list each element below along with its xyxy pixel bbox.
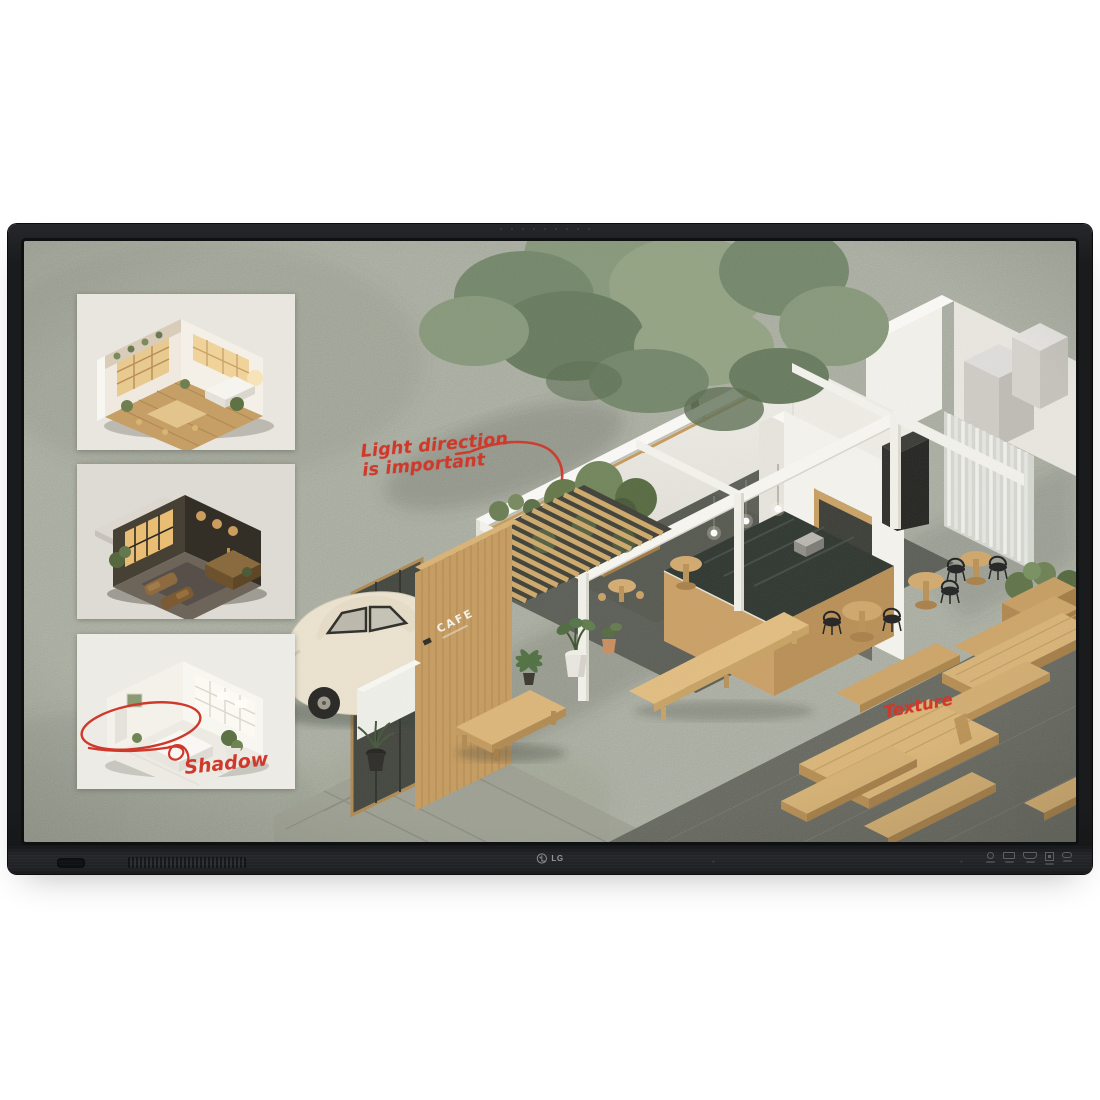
screw-dot	[960, 860, 963, 863]
product-photo: CAFE	[0, 0, 1100, 1100]
usb-port-icon	[1003, 852, 1015, 863]
screw-dot	[712, 860, 715, 863]
rear-port-icons	[986, 852, 1072, 865]
thumbnail-bright-studio-interior: Shadow	[77, 634, 295, 789]
monitor-frame: CAFE	[8, 224, 1092, 874]
bottom-bezel: LG	[8, 845, 1092, 874]
thumbnail-warm-cafe-interior	[77, 294, 295, 450]
ir-sensor-window	[57, 858, 85, 868]
display-screen: CAFE	[24, 241, 1076, 842]
touch-usb-port-icon	[1045, 852, 1054, 865]
thumbnail-dark-lounge-render	[77, 464, 295, 619]
lg-logo-icon	[536, 853, 547, 864]
av-port-icon	[1062, 852, 1072, 862]
power-indicator-icon	[986, 852, 995, 863]
speaker-grille	[128, 857, 246, 868]
thumbnail-warm-cafe-render	[77, 294, 295, 450]
sensor-dots	[500, 228, 590, 230]
lg-logo: LG	[536, 853, 563, 864]
hdmi-port-icon	[1023, 852, 1037, 863]
brand-label: LG	[551, 854, 563, 863]
thumbnail-dark-lounge-interior	[77, 464, 295, 619]
thumbnail-bright-studio-render: Shadow	[77, 634, 295, 789]
